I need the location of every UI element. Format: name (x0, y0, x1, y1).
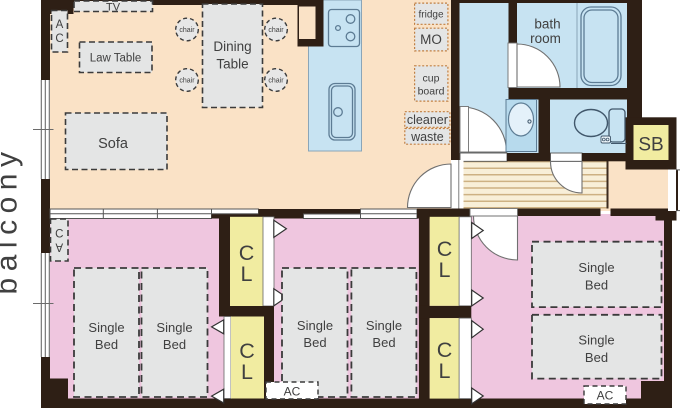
svg-text:C: C (55, 229, 63, 241)
svg-text:MO: MO (420, 32, 442, 47)
svg-text:board: board (418, 86, 445, 98)
svg-text:SB: SB (638, 135, 663, 156)
svg-text:chair: chair (179, 78, 195, 85)
svg-text:Bed: Bed (585, 350, 608, 365)
svg-text:L: L (241, 360, 253, 384)
svg-text:balcony: balcony (0, 146, 24, 295)
svg-text:Bed: Bed (585, 278, 608, 293)
svg-text:chair: chair (179, 27, 195, 34)
svg-text:Single: Single (366, 318, 402, 333)
svg-text:Single: Single (88, 320, 124, 335)
svg-text:A: A (56, 19, 64, 31)
svg-text:chair: chair (268, 27, 284, 34)
svg-text:C: C (55, 33, 63, 45)
svg-text:Table: Table (216, 57, 248, 72)
svg-text:bath: bath (534, 17, 560, 32)
svg-text:chair: chair (268, 78, 284, 85)
svg-text:Law Table: Law Table (90, 53, 142, 65)
svg-text:Bed: Bed (163, 337, 186, 352)
svg-text:cleaner: cleaner (407, 113, 448, 127)
svg-text:Dining: Dining (213, 39, 251, 54)
svg-text:fridge: fridge (418, 10, 443, 21)
svg-text:room: room (530, 31, 561, 46)
svg-text:Single: Single (297, 318, 333, 333)
svg-text:L: L (241, 262, 253, 286)
svg-text:Single: Single (156, 320, 192, 335)
svg-text:L: L (439, 258, 451, 282)
svg-text:Single: Single (578, 333, 614, 348)
svg-text:TV: TV (106, 2, 121, 14)
svg-text:Single: Single (578, 260, 614, 275)
svg-text:L: L (439, 359, 451, 383)
svg-text:AC: AC (597, 389, 614, 403)
svg-text:Bed: Bed (303, 335, 326, 350)
svg-text:waste: waste (410, 130, 444, 144)
svg-text:A: A (55, 241, 63, 253)
svg-text:Bed: Bed (372, 335, 395, 350)
svg-text:Sofa: Sofa (98, 136, 129, 152)
svg-text:Bed: Bed (95, 337, 118, 352)
svg-text:AC: AC (284, 385, 301, 399)
svg-text:cup: cup (423, 73, 440, 85)
